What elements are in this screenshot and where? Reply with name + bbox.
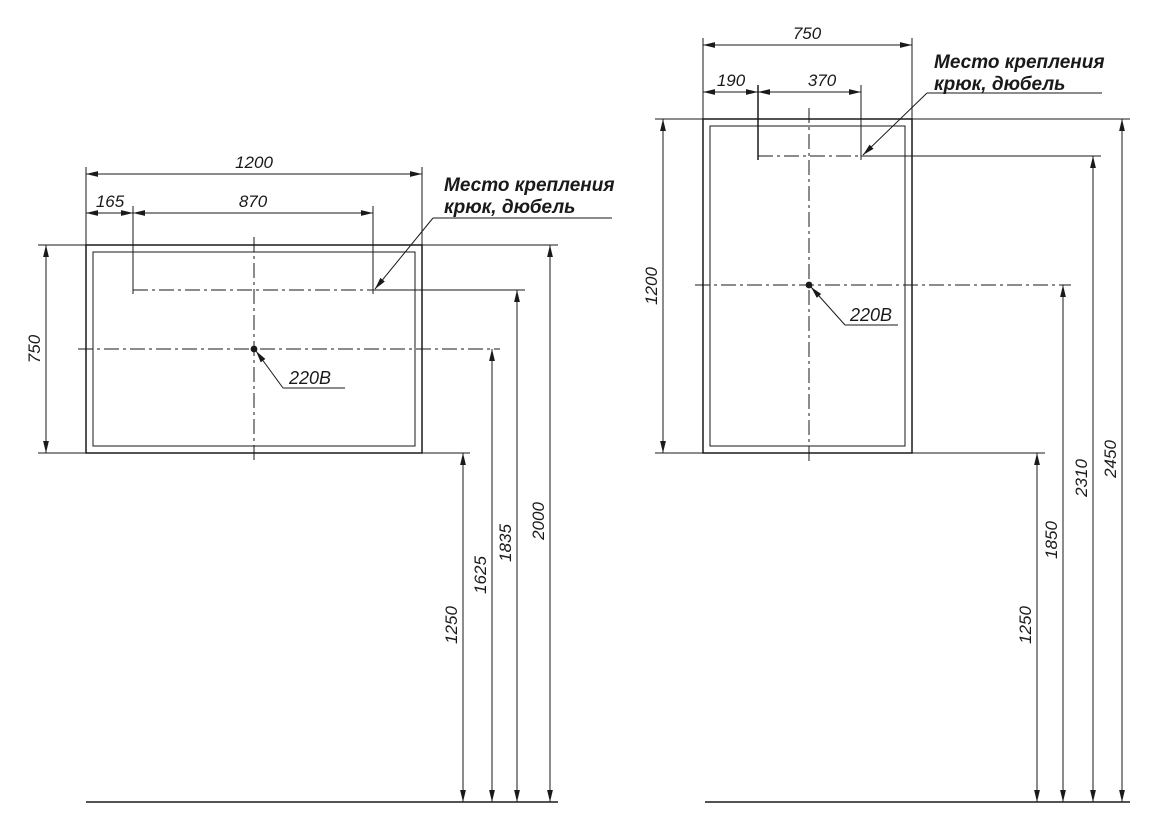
right-drawing: 750 190 370 1200 220В [642,24,1130,802]
left-drawing: 1200 165 870 750 220В [25,153,615,802]
dim-label-width: 750 [793,24,822,43]
dim-label-bottom-height: 1250 [442,606,461,644]
dim-label-hook-span: 370 [808,71,837,90]
dim-label-hook-offset: 190 [717,71,746,90]
outlet-label: 220В [288,368,331,388]
floor-dims: 1250 1625 1835 2000 [442,245,550,802]
dim-label-width: 1200 [235,153,273,172]
dim-label-hook-span: 870 [239,192,268,211]
dim-label-hook-offset: 165 [96,192,125,211]
mount-note-line2: крюк, дюбель [444,197,575,218]
dim-label-top-height: 2000 [529,502,548,541]
dim-label-height: 1200 [642,267,661,305]
dim-label-outlet-height: 1850 [1042,521,1061,559]
mount-note-line2: крюк, дюбель [934,74,1065,95]
mount-note-line1: Место крепления [934,52,1105,73]
leader-line [256,351,283,388]
outlet-label: 220В [849,305,892,325]
leader-line [863,93,927,155]
installation-diagram: 1200 165 870 750 220В [0,0,1152,835]
mount-note-line1: Место крепления [444,175,615,196]
dim-label-hook-height: 1835 [496,524,515,562]
dim-height: 750 [25,245,86,453]
dim-label-bottom-height: 1250 [1016,606,1035,644]
dim-label-height: 750 [25,334,44,363]
diagram-svg: 1200 165 870 750 220В [0,0,1152,835]
floor-dims: 1250 1850 2310 2450 [1016,119,1122,802]
dim-hooks: 165 870 [86,192,373,294]
leader-line [375,218,433,289]
dim-hooks: 190 370 [703,71,861,160]
dim-label-top-height: 2450 [1101,440,1120,479]
dim-label-hook-height: 2310 [1072,459,1091,498]
dim-height: 1200 [642,119,703,453]
dim-label-outlet-height: 1625 [471,556,490,594]
leader-line [811,287,845,325]
